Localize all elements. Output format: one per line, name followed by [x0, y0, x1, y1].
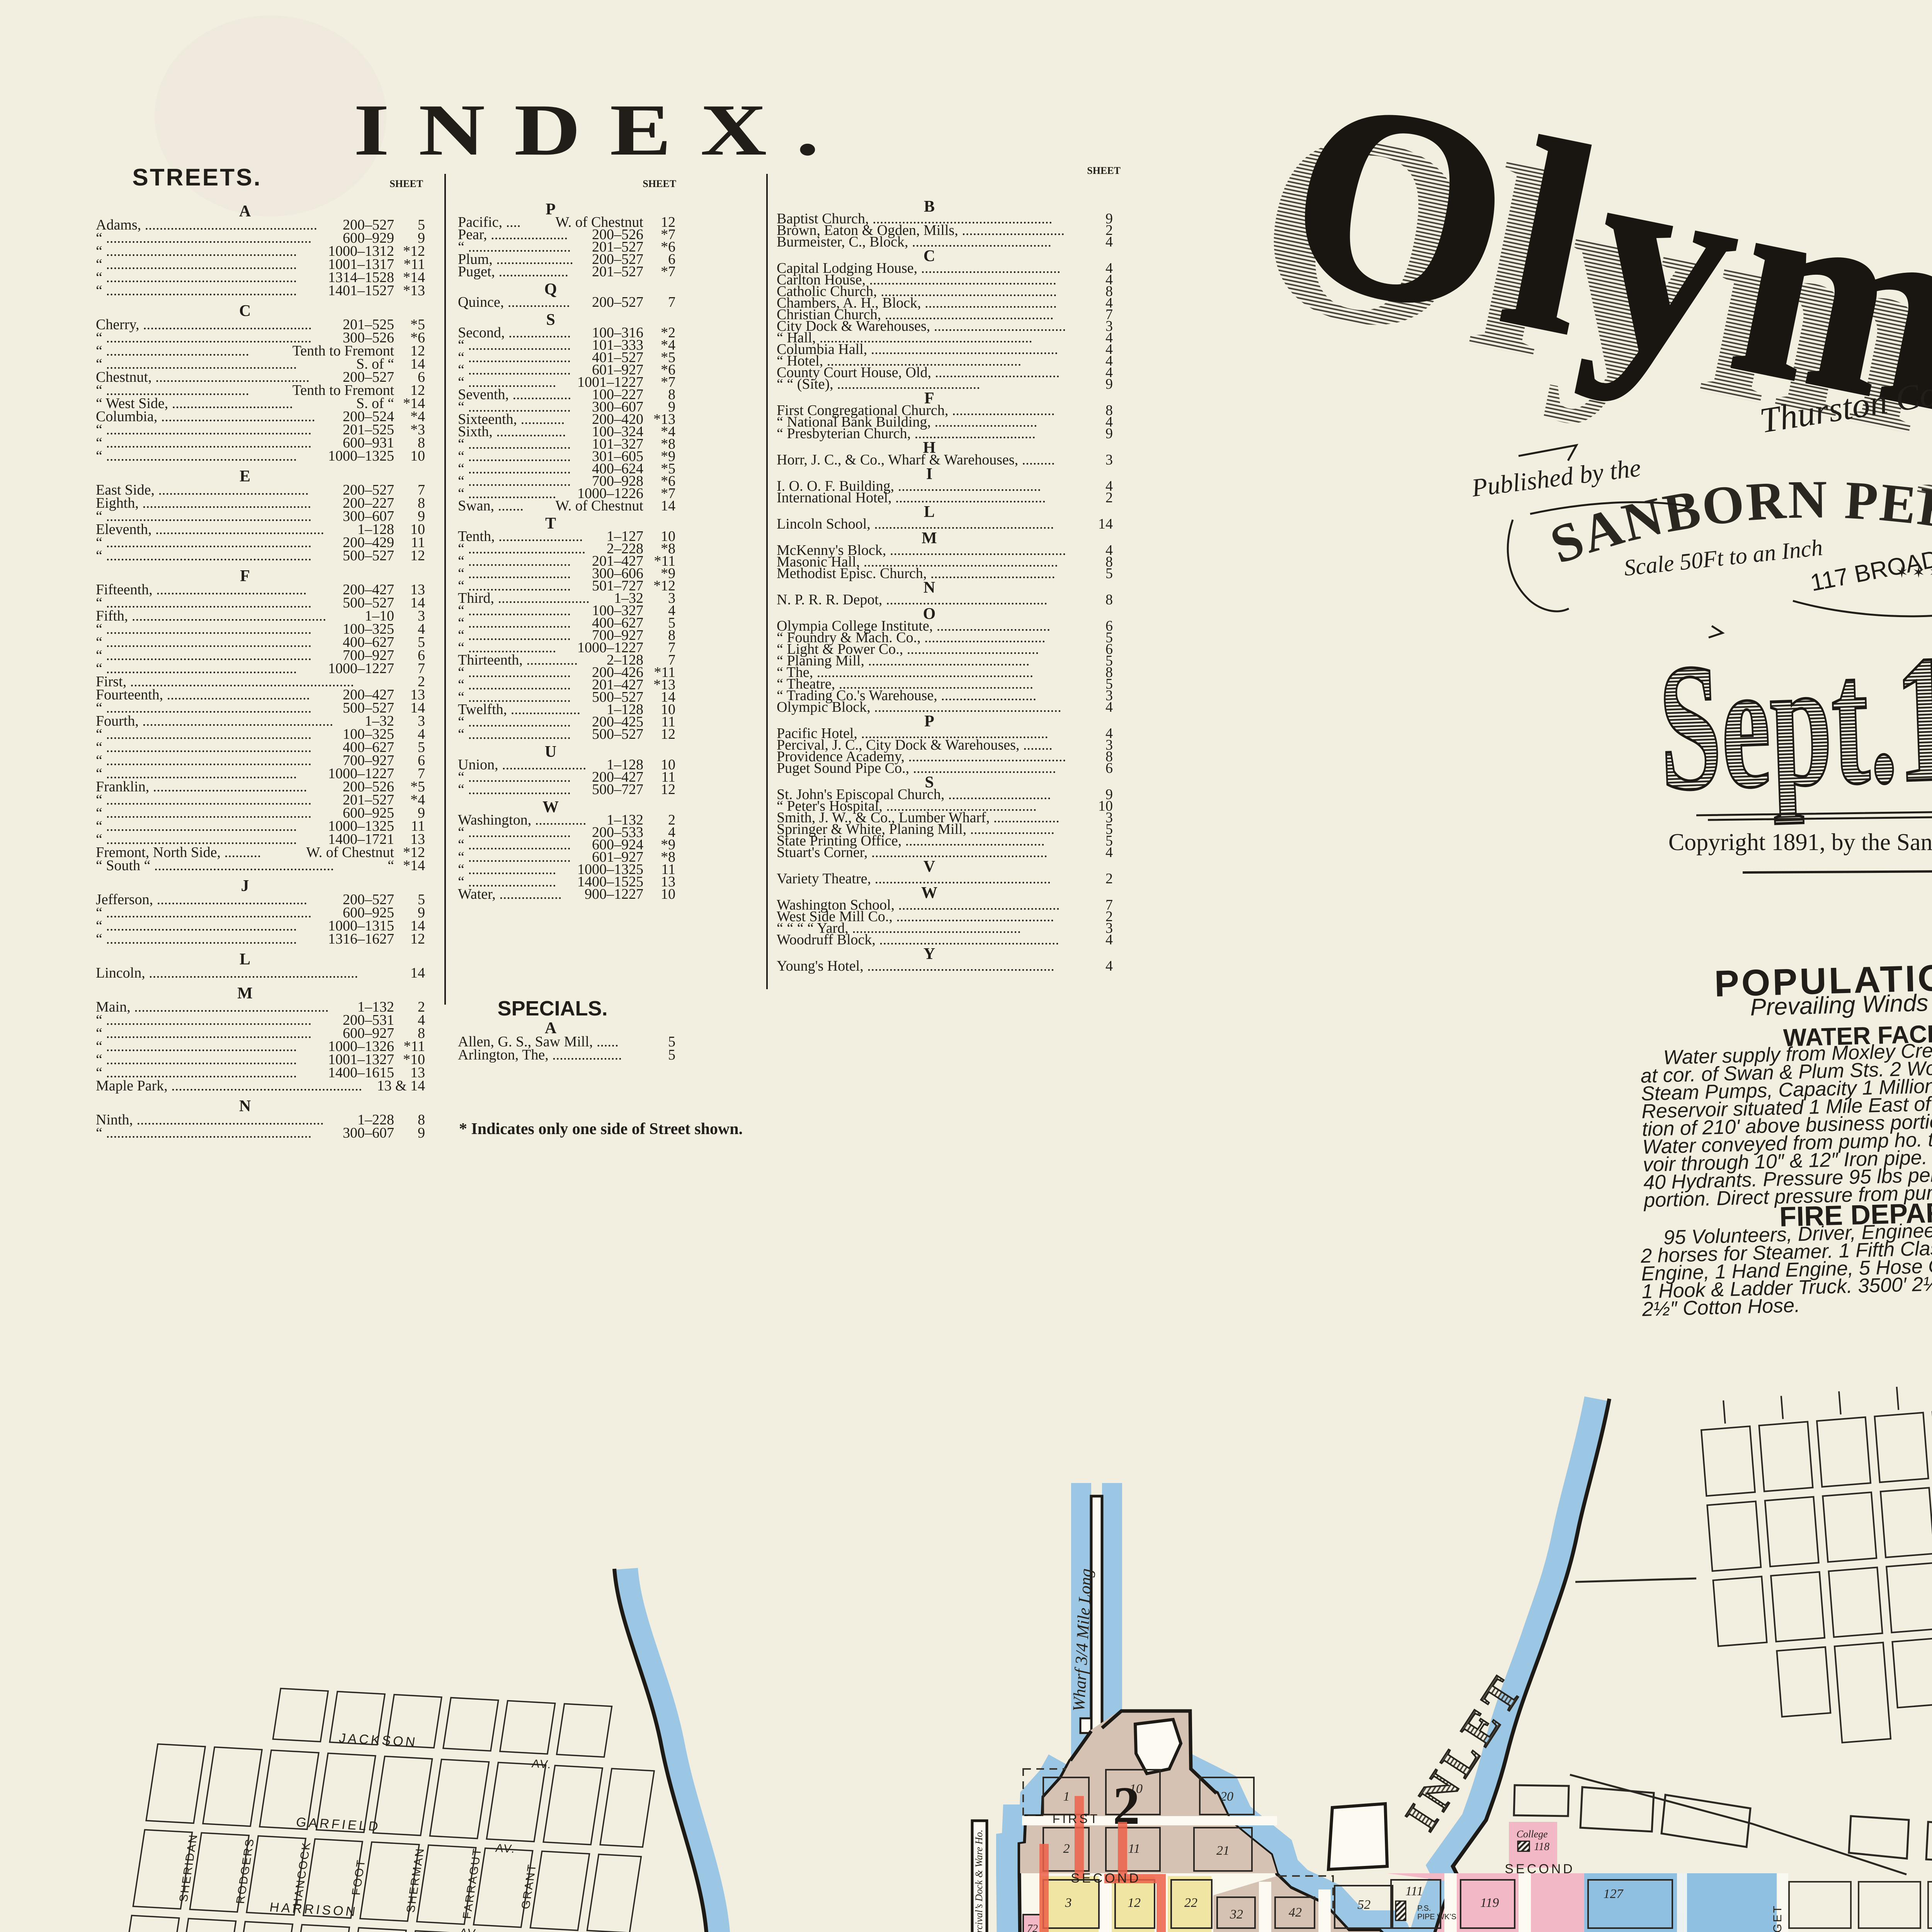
svg-text:500–527: 500–527 — [592, 726, 643, 742]
svg-text:7: 7 — [668, 294, 675, 310]
svg-text:PIPE WK’S: PIPE WK’S — [1417, 1913, 1456, 1921]
svg-text:W. of Chestnut: W. of Chestnut — [555, 498, 643, 514]
svg-text:20: 20 — [1220, 1789, 1233, 1804]
svg-text:Lincoln, .....................: Lincoln, ...............................… — [96, 965, 358, 981]
svg-text:“ ............................: “ ......................................… — [96, 1125, 311, 1141]
svg-text:*14: *14 — [403, 857, 425, 874]
svg-text:10: 10 — [661, 886, 675, 902]
svg-text:FIRST: FIRST — [1053, 1812, 1100, 1826]
svg-text:3: 3 — [1105, 452, 1113, 468]
svg-text:32: 32 — [1230, 1907, 1243, 1922]
svg-text:Sept.1891: Sept.1891 — [1656, 612, 1932, 829]
svg-text:“ ............................: “ ............................ — [458, 781, 571, 798]
svg-text:5: 5 — [668, 1047, 675, 1063]
svg-text:Quince, .................: Quince, ................. — [458, 294, 570, 310]
svg-text:12: 12 — [661, 726, 675, 742]
svg-text:Young's Hotel, ...............: Young's Hotel, .........................… — [777, 958, 1054, 974]
svg-text:Variety Theatre, .............: Variety Theatre, .......................… — [777, 871, 1051, 887]
svg-text:Stuart's Corner, .............: Stuart's Corner, .......................… — [777, 844, 1048, 861]
svg-text:6: 6 — [1105, 760, 1113, 776]
svg-text:21: 21 — [1216, 1844, 1230, 1858]
svg-text:1316–1627: 1316–1627 — [328, 931, 394, 947]
svg-text:12: 12 — [410, 931, 425, 947]
svg-text:“ “ (Site), ........: “ “ (Site), ............................… — [777, 376, 980, 392]
svg-text:Copyright 1891, by the Sanborn: Copyright 1891, by the Sanborn-Perris Ma… — [1668, 829, 1932, 855]
svg-text:11: 11 — [1128, 1842, 1140, 1856]
svg-text:N. P. R. R. Depot, ...........: N. P. R. R. Depot, .....................… — [777, 592, 1048, 608]
svg-text:4: 4 — [1105, 958, 1113, 974]
svg-text:12: 12 — [1128, 1896, 1141, 1910]
svg-text:4: 4 — [1105, 844, 1113, 861]
svg-text:Puget, ...................: Puget, ................... — [458, 264, 568, 280]
svg-text:3: 3 — [1065, 1896, 1072, 1910]
svg-text:*13: *13 — [403, 282, 425, 299]
svg-text:118: 118 — [1534, 1841, 1549, 1853]
svg-text:SECOND: SECOND — [1071, 1871, 1141, 1886]
svg-text:SHEET: SHEET — [389, 178, 423, 189]
svg-text:“ ............................: “ ......................................… — [96, 931, 297, 947]
svg-text:13 & 14: 13 & 14 — [377, 1078, 425, 1094]
svg-text:Olympic Block, ...............: Olympic Block, .........................… — [777, 699, 1061, 715]
svg-text:119: 119 — [1480, 1896, 1499, 1910]
svg-text:P: P — [546, 201, 556, 218]
svg-text:THIRD: THIRD — [1338, 1930, 1390, 1932]
svg-text:2: 2 — [1063, 1842, 1070, 1856]
svg-text:Arlington, The, ..............: Arlington, The, ................... — [458, 1047, 622, 1063]
svg-text:AV.: AV. — [459, 1926, 481, 1932]
svg-text:8: 8 — [1105, 592, 1113, 608]
svg-text:“ Presbyterian Church, ....: “ Presbyterian Church, .................… — [777, 425, 1036, 442]
svg-text:SHEET: SHEET — [1087, 165, 1121, 176]
svg-text:14: 14 — [1098, 516, 1113, 532]
svg-text:72: 72 — [1027, 1923, 1038, 1932]
svg-text:“ South “ .................: “ South “ ..............................… — [96, 857, 334, 874]
svg-text:10: 10 — [410, 448, 425, 464]
svg-text:1401–1527: 1401–1527 — [328, 282, 394, 299]
svg-text:22: 22 — [1184, 1896, 1197, 1910]
svg-text:4: 4 — [1105, 932, 1113, 948]
svg-text:Maple Park, ..................: Maple Park, ............................… — [96, 1078, 362, 1094]
svg-text:“ ............................: “ ......................................… — [96, 282, 297, 299]
svg-text:52: 52 — [1357, 1898, 1371, 1912]
svg-text:AV.: AV. — [495, 1842, 517, 1855]
svg-text:* Indicates only one side of S: * Indicates only one side of Street show… — [459, 1120, 743, 1138]
svg-text:✶ ✶ ✶ ✶: ✶ ✶ ✶ ✶ — [1895, 564, 1932, 581]
svg-text:SPECIALS.: SPECIALS. — [497, 997, 607, 1020]
svg-text:9: 9 — [1105, 425, 1113, 442]
svg-text:Woodruff Block, ..............: Woodruff Block, ........................… — [777, 932, 1059, 948]
svg-text:12: 12 — [410, 548, 425, 564]
svg-text:INDEX.: INDEX. — [354, 90, 848, 171]
svg-text:500–527: 500–527 — [343, 548, 394, 564]
svg-text:“ ............................: “ ......................................… — [96, 448, 297, 464]
svg-text:P.S.: P.S. — [1417, 1904, 1431, 1913]
svg-text:12: 12 — [661, 781, 675, 798]
svg-text:AV.: AV. — [531, 1757, 553, 1771]
svg-text:“ ............................: “ ............................ — [458, 726, 571, 742]
svg-text:Lincoln School, ..............: Lincoln School, ........................… — [777, 516, 1054, 532]
svg-text:900–1227: 900–1227 — [585, 886, 643, 902]
svg-text:Water, .................: Water, ................. — [458, 886, 562, 902]
svg-text:1000–1325: 1000–1325 — [328, 448, 394, 464]
svg-text:2½″ Cotton Hose.: 2½″ Cotton Hose. — [1641, 1294, 1800, 1321]
svg-text:127: 127 — [1604, 1887, 1624, 1901]
svg-text:“: “ — [388, 857, 394, 874]
svg-text:Swan, .......: Swan, ....... — [458, 498, 524, 514]
svg-text:300–607: 300–607 — [343, 1125, 394, 1141]
svg-text:*7: *7 — [661, 264, 675, 280]
svg-text:1: 1 — [1063, 1789, 1070, 1804]
svg-text:SHEET: SHEET — [643, 178, 676, 189]
svg-text:International Hotel, .........: International Hotel, ...................… — [777, 490, 1046, 506]
svg-text:500–727: 500–727 — [592, 781, 643, 798]
svg-text:STREETS.: STREETS. — [132, 164, 262, 191]
svg-text:Puget Sound Pipe Co., ........: Puget Sound Pipe Co., ..................… — [777, 760, 1056, 776]
svg-text:Horr, J. C., & Co., Wharf & Wa: Horr, J. C., & Co., Wharf & Warehouses, … — [777, 452, 1055, 468]
svg-text:5: 5 — [1105, 565, 1113, 582]
svg-text:“ ............................: “ ......................................… — [96, 548, 311, 564]
svg-text:14: 14 — [410, 965, 425, 981]
svg-text:J.C. Percival’s Dock & Ware Ho: J.C. Percival’s Dock & Ware Ho. — [973, 1830, 985, 1932]
svg-text:Burmeister, C., Block, .......: Burmeister, C., Block, .................… — [777, 234, 1051, 250]
svg-text:College: College — [1517, 1828, 1548, 1840]
svg-text:2: 2 — [1105, 490, 1113, 506]
svg-text:9: 9 — [1105, 376, 1113, 392]
svg-text:9: 9 — [418, 1125, 425, 1141]
svg-text:4: 4 — [1105, 234, 1113, 250]
svg-text:14: 14 — [661, 498, 675, 514]
svg-text:2: 2 — [1105, 871, 1113, 887]
svg-text:Prevailing Winds: Prevailing Winds — [1750, 990, 1929, 1021]
svg-text:Methodist Episc. Church, .....: Methodist Episc. Church, ...............… — [777, 565, 1055, 582]
svg-text:201–527: 201–527 — [592, 264, 643, 280]
svg-text:PUGET: PUGET — [1771, 1904, 1784, 1932]
svg-text:4: 4 — [1105, 699, 1113, 715]
svg-text:111: 111 — [1405, 1884, 1423, 1898]
svg-text:42: 42 — [1289, 1905, 1302, 1920]
svg-text:SECOND: SECOND — [1505, 1862, 1575, 1876]
svg-text:200–527: 200–527 — [592, 294, 643, 310]
